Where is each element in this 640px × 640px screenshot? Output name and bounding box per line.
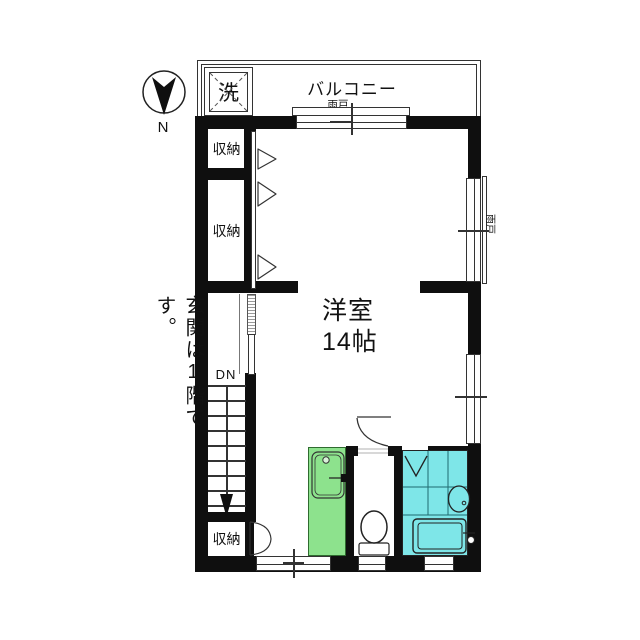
compass-icon (143, 71, 185, 115)
mid-wall-left (195, 281, 298, 293)
kitchenette-unit (308, 447, 346, 556)
balcony-window-tick (351, 103, 353, 135)
closet-divider-wall (208, 168, 244, 180)
balcony-window-rail-tick (330, 121, 351, 123)
storage-middle-label: 収納 (208, 180, 245, 281)
stair-partition-wall (245, 373, 256, 513)
storage-top-label: 収納 (208, 128, 245, 169)
balcony-label: バルコニー (292, 77, 412, 97)
bathroom-vent-window (424, 556, 454, 571)
mid-wall-right-stub (420, 281, 468, 293)
toilet-icon (359, 511, 389, 555)
unit-bath (402, 450, 468, 556)
laundry-label: 洗 (209, 72, 248, 112)
bottom-window-tick-v (293, 549, 295, 578)
sliding-door-rail (239, 294, 240, 374)
stair-tread-9 (208, 505, 246, 507)
toilet-vent-window (358, 556, 386, 571)
room-size: 14帖 (322, 327, 378, 358)
right-window-lower-tick (455, 396, 487, 398)
entrance-note: 玄関は1階です。 (150, 295, 208, 470)
stair-center-line (226, 385, 228, 497)
sliding-door-panel (248, 334, 255, 375)
toilet-door-jamb-right (388, 446, 402, 456)
closet-door-triangle-icons (258, 149, 276, 279)
north-arrow-icon (152, 77, 176, 115)
toilet-door-icon (357, 417, 391, 446)
sliding-door-pocket (247, 294, 256, 335)
floor-plan: 洗 バルコニー 雨戸 雨戸 DN (0, 0, 640, 640)
stairs-label: DN (204, 366, 248, 382)
toilet-right-wall (394, 446, 402, 557)
right-window-lower (466, 354, 481, 444)
closet-door-strip (251, 131, 256, 289)
side-window-shutter-label: 雨戸 (486, 210, 498, 238)
room-name: 洋室 (322, 296, 378, 327)
toilet-door-jamb-left (346, 446, 358, 456)
compass-north-label: N (149, 119, 177, 135)
bottom-closet-wall (245, 521, 254, 557)
toilet-left-wall (346, 446, 354, 557)
bottom-window-tick-h (283, 562, 304, 564)
room-label: 洋室 14帖 (322, 296, 378, 358)
toilet-door-threshold (358, 449, 388, 453)
storage-bottom-label: 収納 (208, 521, 245, 556)
